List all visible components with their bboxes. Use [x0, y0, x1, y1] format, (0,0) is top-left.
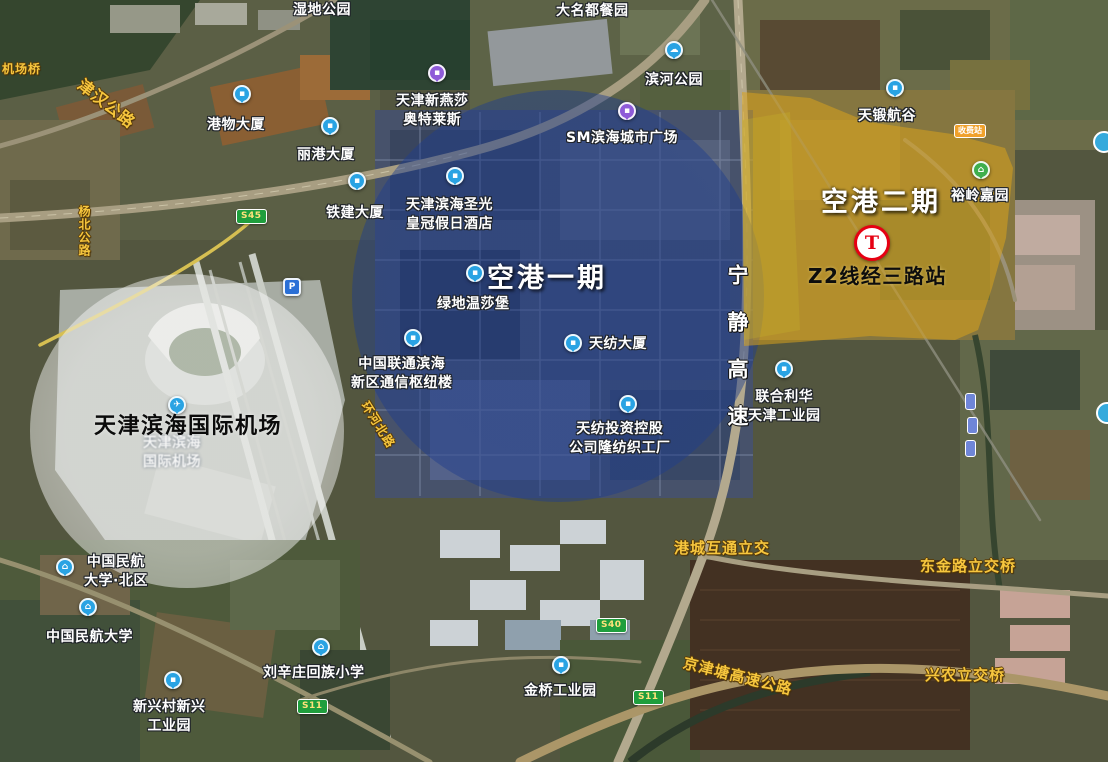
building-poi-icon[interactable]: ▪: [404, 329, 422, 347]
poi-label-tiejian-tower[interactable]: 铁建大厦: [326, 204, 384, 223]
factory-poi-icon[interactable]: ▪: [619, 395, 637, 413]
hotel-poi-icon[interactable]: ▪: [446, 167, 464, 185]
poi-label-cauc[interactable]: 中国民航大学: [46, 628, 133, 647]
school-poi-icon[interactable]: ⌂: [312, 638, 330, 656]
poi-label-greenland-windsor[interactable]: 绿地温莎堡: [437, 295, 510, 314]
water-marker-icon: [965, 393, 976, 410]
airport-title: 天津滨海国际机场: [94, 408, 282, 440]
toll-station-badge: 收费站: [954, 124, 986, 138]
road-shield: S45: [236, 209, 267, 224]
poi-label-crowne-plaza[interactable]: 天津滨海圣光 皇冠假日酒店: [406, 196, 493, 234]
poi-label-tianduan-valley[interactable]: 天锻航谷: [858, 107, 916, 126]
poi-label-sm-plaza[interactable]: SM滨海城市广场: [566, 129, 678, 148]
road-label-jichang-bridge: 机场桥: [2, 60, 41, 77]
poi-label-tianfang-tower[interactable]: 天纺大厦: [589, 335, 647, 354]
road-shield: S40: [596, 618, 627, 633]
poi-label-xinxing-park[interactable]: 新兴村新兴 工业园: [133, 698, 206, 736]
building-poi-icon[interactable]: ▪: [886, 79, 904, 97]
residence-poi-icon[interactable]: ⌂: [972, 161, 990, 179]
road-label-xingnong-interchange: 兴农立交桥: [925, 664, 1005, 685]
poi-label-cauc-north[interactable]: 中国民航 大学·北区: [84, 553, 148, 591]
satellite-map: ▪ ▪ ▪ ☁ ▪ ▪ ▪ ▪ ⌂ ▪ ▪ ▪ ▪ ▪ ⌂ ⌂ ⌂ ▪ ▪ ✈ …: [0, 0, 1108, 762]
road-shield: S11: [633, 690, 664, 705]
station-title: Z2线经三路站: [808, 260, 947, 289]
building-poi-icon[interactable]: ▪: [348, 172, 366, 190]
water-marker-icon: [965, 440, 976, 457]
shopping-poi-icon[interactable]: ▪: [428, 64, 446, 82]
poi-label-damingdu[interactable]: 大名都餐园: [556, 2, 629, 21]
building-poi-icon[interactable]: ▪: [466, 264, 484, 282]
parking-icon[interactable]: P: [283, 278, 301, 296]
road-label-dongjin-interchange: 东金路立交桥: [920, 555, 1016, 576]
park-cloud-poi-icon[interactable]: ☁: [665, 41, 683, 59]
school-poi-icon[interactable]: ⌂: [56, 558, 74, 576]
poi-label-liuxinzhuang-school[interactable]: 刘辛庄回族小学: [263, 664, 365, 683]
building-poi-icon[interactable]: ▪: [564, 334, 582, 352]
building-poi-icon[interactable]: ▪: [321, 117, 339, 135]
road-label-gangcheng-interchange: 港城互通立交: [674, 537, 770, 558]
building-poi-icon[interactable]: ▪: [233, 85, 251, 103]
poi-label-unilever-park[interactable]: 联合利华 天津工业园: [748, 388, 821, 426]
metro-station-icon[interactable]: T: [854, 225, 890, 261]
phase1-title: 空港一期: [487, 256, 607, 295]
water-marker-icon: [967, 417, 978, 434]
poi-label-yuling-jiayuan[interactable]: 裕岭嘉园: [951, 187, 1009, 206]
factory-poi-icon[interactable]: ▪: [552, 656, 570, 674]
road-shield: S11: [297, 699, 328, 714]
satellite-basemap: [0, 0, 1108, 762]
poi-label-textile-factory[interactable]: 天纺投资控股 公司隆纺织工厂: [569, 420, 671, 458]
school-poi-icon[interactable]: ⌂: [79, 598, 97, 616]
poi-label-yansha-outlets[interactable]: 天津新燕莎 奥特莱斯: [396, 92, 469, 130]
poi-label-jinqiao-park[interactable]: 金桥工业园: [524, 682, 597, 701]
shopping-poi-icon[interactable]: ▪: [618, 102, 636, 120]
poi-label-wetland-park[interactable]: 湿地公园: [293, 1, 351, 20]
factory-poi-icon[interactable]: ▪: [164, 671, 182, 689]
road-label-ningjing-expressway: 宁静高速: [722, 264, 752, 454]
factory-poi-icon[interactable]: ▪: [775, 360, 793, 378]
poi-label-ligang-tower[interactable]: 丽港大厦: [297, 146, 355, 165]
road-label-yangbei-highway: 杨北公路: [76, 205, 93, 260]
poi-label-unicom-hub[interactable]: 中国联通滨海 新区通信枢纽楼: [351, 355, 453, 393]
poi-label-binhe-park[interactable]: 滨河公园: [645, 71, 703, 90]
poi-label-gangwu-tower[interactable]: 港物大厦: [207, 116, 265, 135]
phase2-title: 空港二期: [821, 180, 941, 219]
poi-icon-partial: [1093, 131, 1108, 153]
